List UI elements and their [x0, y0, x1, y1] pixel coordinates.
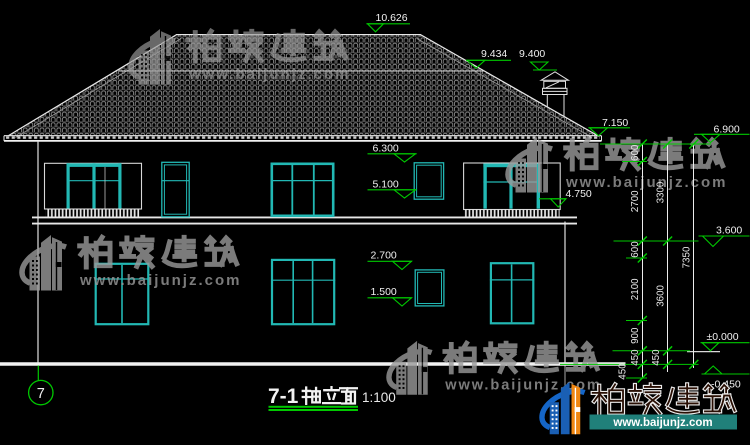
svg-text:600: 600	[630, 241, 641, 258]
svg-text:3.600: 3.600	[716, 225, 742, 237]
svg-text:3600: 3600	[655, 284, 666, 306]
svg-text:±0.000: ±0.000	[707, 331, 739, 343]
svg-text:600: 600	[630, 144, 641, 161]
svg-text:4.750: 4.750	[566, 188, 592, 200]
svg-text:7: 7	[37, 386, 45, 402]
svg-text:450: 450	[618, 363, 629, 380]
svg-text:1.500: 1.500	[371, 286, 397, 298]
svg-text:2700: 2700	[630, 190, 641, 212]
svg-text:3300: 3300	[655, 181, 666, 203]
svg-text:9.434: 9.434	[481, 48, 507, 60]
svg-text:10.626: 10.626	[376, 12, 408, 24]
svg-text:450: 450	[651, 349, 662, 366]
svg-text:7.150: 7.150	[602, 117, 628, 129]
svg-text:5.100: 5.100	[373, 179, 399, 191]
svg-text:7-1: 7-1	[268, 385, 299, 408]
svg-text:9.400: 9.400	[519, 48, 545, 60]
svg-text:www.baijunjz.com: www.baijunjz.com	[612, 417, 712, 429]
svg-text:450: 450	[630, 349, 641, 366]
svg-text:1:100: 1:100	[362, 390, 396, 405]
svg-text:2100: 2100	[630, 278, 641, 300]
svg-text:2.700: 2.700	[371, 250, 397, 262]
svg-text:6.300: 6.300	[373, 143, 399, 155]
svg-text:6.900: 6.900	[714, 124, 740, 136]
svg-text:7350: 7350	[682, 246, 693, 268]
svg-text:900: 900	[630, 327, 641, 344]
